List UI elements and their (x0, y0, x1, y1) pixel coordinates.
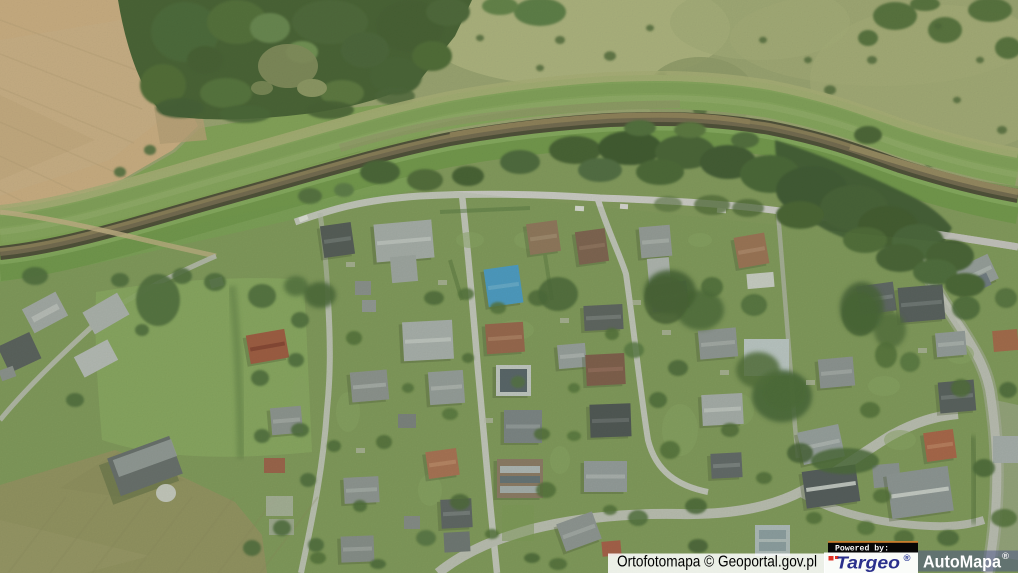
svg-text:Targeo: Targeo (836, 553, 900, 573)
svg-text:®: ® (1002, 551, 1009, 562)
svg-text:AutoMapa: AutoMapa (923, 552, 1001, 572)
svg-text:Ortofotomapa © Geoportal.gov.p: Ortofotomapa © Geoportal.gov.pl (617, 554, 817, 571)
svg-text:®: ® (904, 553, 911, 564)
